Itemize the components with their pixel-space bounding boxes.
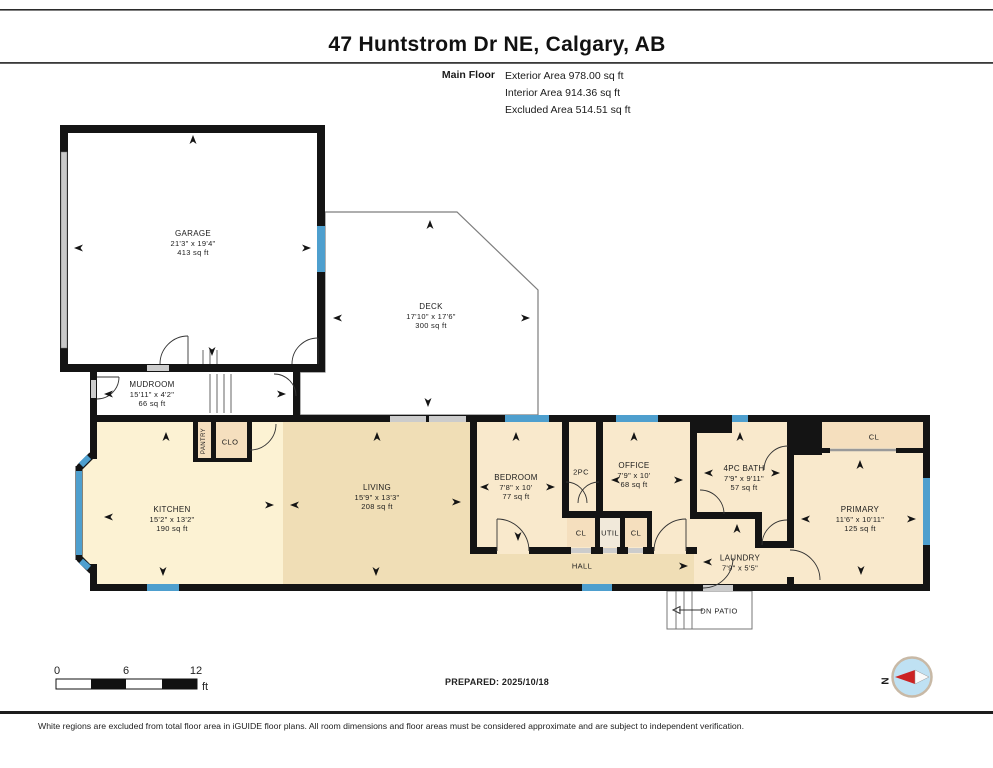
mudroom-door	[91, 380, 96, 398]
scale-bar	[56, 679, 197, 689]
room-label-primary-closet: CL	[869, 433, 879, 442]
room-label-living: LIVING 15'9" x 13'3" 208 sq ft	[354, 483, 399, 512]
room-label-garage: GARAGE 21'3" x 19'4" 413 sq ft	[170, 229, 215, 258]
room-label-bedroom: BEDROOM 7'8" x 10' 77 sq ft	[494, 473, 537, 502]
bedroom-window	[505, 415, 549, 422]
room-label-util: UTIL	[601, 529, 619, 538]
compass	[893, 658, 932, 697]
scale-unit: ft	[202, 681, 208, 693]
room-label-cl2: CL	[631, 529, 641, 538]
disclaimer-text: White regions are excluded from total fl…	[38, 721, 744, 731]
room-label-patio: DN PATIO	[700, 607, 738, 616]
scale-6: 6	[123, 665, 129, 677]
room-label-primary: PRIMARY 11'6" x 10'11" 125 sq ft	[836, 505, 884, 534]
exterior-area: Exterior Area 978.00 sq ft	[505, 68, 631, 85]
room-label-office: OFFICE 7'9" x 10' 68 sq ft	[617, 461, 650, 490]
room-label-cl1: CL	[576, 529, 586, 538]
floor-plan-page: 47 Huntstrom Dr NE, Calgary, AB Main Flo…	[0, 0, 993, 768]
room-label-clo: CLO	[222, 438, 239, 447]
room-label-laundry: LAUNDRY 7'9" x 5'5"	[720, 554, 760, 573]
garage-door	[61, 152, 67, 348]
office-window	[616, 415, 658, 422]
room-label-pantry: PANTRY	[201, 428, 207, 454]
excluded-area: Excluded Area 514.51 sq ft	[505, 102, 631, 119]
room-label-2pc: 2PC	[573, 468, 589, 477]
garage-entry-door	[147, 365, 169, 371]
area-summary: Exterior Area 978.00 sq ft Interior Area…	[505, 68, 631, 119]
room-label-hall: HALL	[572, 562, 592, 571]
room-label-mudroom: MUDROOM 15'11" x 4'2" 66 sq ft	[129, 380, 174, 409]
scale-12: 12	[190, 665, 202, 677]
room-label-kitchen: KITCHEN 15'2" x 13'2" 190 sq ft	[149, 505, 194, 534]
garage-window	[317, 226, 325, 272]
interior-area: Interior Area 914.36 sq ft	[505, 85, 631, 102]
page-title: 47 Huntstrom Dr NE, Calgary, AB	[328, 33, 665, 57]
room-label-bath: 4PC BATH 7'9" x 9'11" 57 sq ft	[724, 464, 765, 493]
bath-window	[732, 415, 748, 422]
north-label: N	[881, 677, 892, 684]
kitchen-window	[147, 584, 179, 591]
hall-window	[582, 584, 612, 591]
primary-window	[923, 478, 930, 545]
kitchen-fill	[97, 422, 283, 584]
prepared-date: PREPARED: 2025/10/18	[445, 677, 549, 687]
scale-0: 0	[54, 665, 60, 677]
floor-label: Main Floor	[380, 69, 495, 81]
room-label-deck: DECK 17'10" x 17'6" 300 sq ft	[406, 302, 456, 331]
mudroom	[90, 368, 300, 422]
